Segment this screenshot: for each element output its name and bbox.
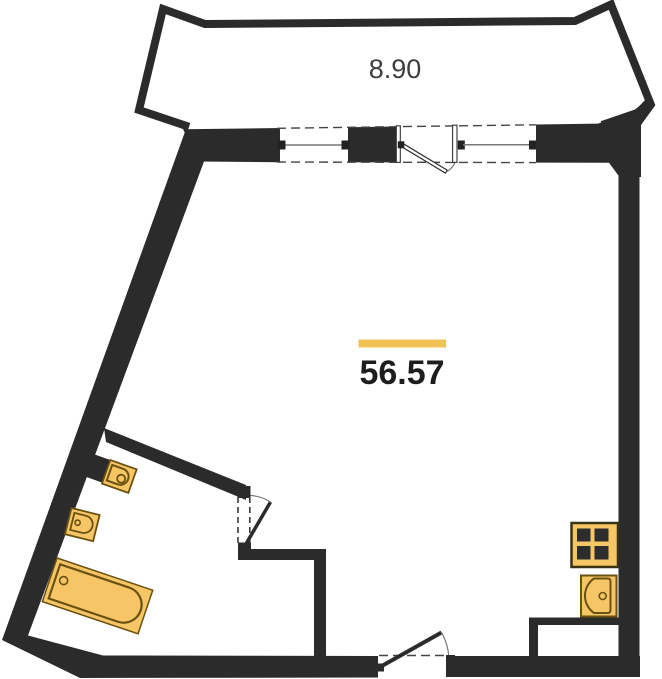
svg-text:56.57: 56.57 xyxy=(359,354,444,392)
svg-text:8.90: 8.90 xyxy=(369,54,422,84)
